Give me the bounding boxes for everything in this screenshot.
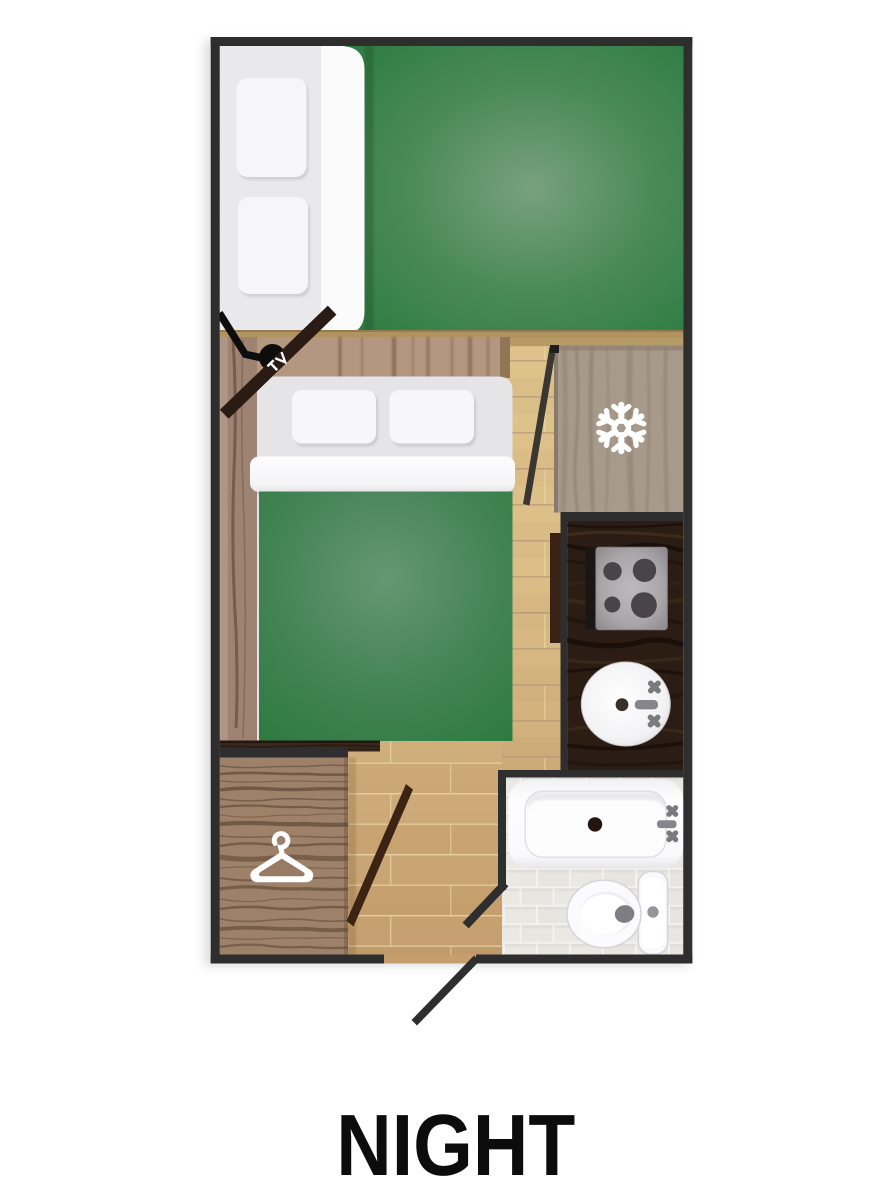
svg-text:NIGHT: NIGHT [336, 1097, 575, 1194]
